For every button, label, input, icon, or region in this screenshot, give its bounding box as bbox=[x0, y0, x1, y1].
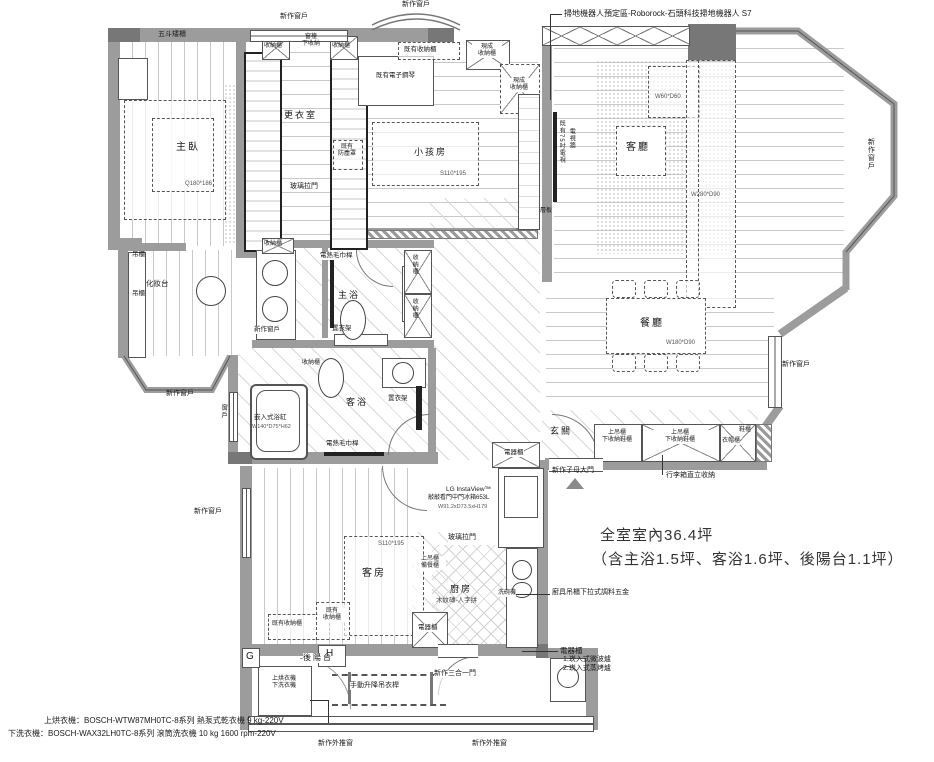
shelf-label: 層板 bbox=[540, 208, 552, 215]
sill-storage-label: 窗檯 下收納 bbox=[292, 34, 330, 48]
room-label-guest-bath: 客浴 bbox=[346, 397, 368, 408]
sofa bbox=[686, 60, 736, 308]
appliance-callout-leader bbox=[522, 651, 558, 652]
column bbox=[108, 28, 140, 42]
robot-leader bbox=[550, 14, 551, 100]
sink bbox=[392, 362, 414, 384]
closet-wardrobe-left bbox=[244, 52, 282, 252]
dining-chair bbox=[644, 280, 668, 298]
balcony-window-band bbox=[248, 716, 594, 732]
grid-letter-h: H bbox=[326, 648, 333, 660]
heated-towel-bar bbox=[324, 452, 384, 456]
dining-chair bbox=[612, 280, 636, 298]
piano bbox=[358, 56, 434, 106]
washer-spec-note: 下洗衣機：BOSCH-WAX32LH0TC-8系列 滾筒洗衣機 10 kg 16… bbox=[8, 729, 276, 739]
prep-cabinet-line: 備餐櫃 bbox=[421, 563, 439, 569]
wall-segment bbox=[428, 348, 436, 456]
window-label: 窗戶 bbox=[219, 404, 227, 419]
kitchen-balcony-door-gap bbox=[438, 644, 478, 658]
area-summary-line2: （含主浴1.5坪、客浴1.6坪、後陽台1.1坪） bbox=[592, 548, 904, 569]
ready-line1: 現成 bbox=[481, 44, 493, 50]
push-out-window-label: 新作外推窗 bbox=[472, 740, 507, 748]
column bbox=[688, 24, 736, 62]
storage-cabinet-label: 收納櫃 bbox=[302, 360, 320, 367]
double-door-label: 新作子母大門 bbox=[552, 467, 594, 475]
master-bed-size: Q180*186 bbox=[185, 181, 212, 188]
sink bbox=[262, 260, 288, 286]
fridge-inner bbox=[504, 476, 538, 518]
upper-cabinet-line: 上吊櫃 bbox=[421, 556, 439, 562]
robot-vacuum-note: 掃地機器人預定區-Roborock-石頭科技掃地機器人 S7 bbox=[564, 9, 752, 19]
guest-bed-size: S110*195 bbox=[378, 541, 404, 548]
ready-line2: 收納櫃 bbox=[510, 85, 528, 91]
new-window-label: 新作窗戶 bbox=[166, 390, 194, 398]
floor-plan: 主臥 Q180*186 更衣室 小孩房 S110*195 客廳 W60*D60 … bbox=[0, 0, 934, 762]
storage-cabinet-label: 收納櫃 bbox=[410, 298, 417, 319]
dishwasher-label: 洗碗機 bbox=[498, 590, 516, 597]
existing-storage-label: 既有收納櫃 bbox=[404, 46, 437, 54]
kitchen-floor-label: 木紋磚-人字拼 bbox=[436, 597, 477, 605]
living-window-band bbox=[542, 26, 690, 46]
window bbox=[242, 488, 251, 558]
coffee-table-size: W60*D60 bbox=[655, 94, 681, 101]
window bbox=[768, 336, 782, 408]
shoe-storage-line: 下收納鞋櫃 bbox=[665, 437, 695, 443]
coat-cabinet-label: 衣帽櫃 bbox=[722, 438, 740, 445]
room-label-kids: 小孩房 bbox=[414, 147, 447, 158]
luggage-leader bbox=[662, 455, 663, 475]
appliance-cabinet-label: 電器櫃 bbox=[418, 624, 438, 632]
ready-line2: 收納櫃 bbox=[478, 51, 496, 57]
room-label-master: 主臥 bbox=[176, 142, 200, 154]
dining-chair bbox=[644, 354, 668, 372]
heated-towel-bar bbox=[330, 258, 334, 328]
sill-line2: 下收納 bbox=[302, 41, 320, 47]
fridge-label-1: LG InstaView™ bbox=[446, 486, 491, 494]
room-label-closet: 更衣室 bbox=[284, 110, 317, 121]
appliance-callout-item2: 2.崁入式蒸烤爐 bbox=[563, 665, 611, 673]
bosch-leader bbox=[310, 700, 329, 701]
dining-table-size: W180*D90 bbox=[666, 340, 695, 347]
clothes-rack-bar bbox=[416, 386, 422, 430]
new-window-label: 新作窗戶 bbox=[402, 1, 430, 9]
sofa-cushion-line bbox=[698, 60, 699, 306]
dust-cover-label: 既有 防塵罩 bbox=[334, 144, 360, 158]
existing-line: 既有 bbox=[326, 608, 338, 614]
kids-bookshelf bbox=[518, 94, 540, 230]
wall-segment bbox=[118, 250, 128, 358]
vanity-bay-glass bbox=[124, 356, 230, 390]
clothes-rack-label: 置衣架 bbox=[332, 325, 352, 333]
wall-segment bbox=[240, 644, 548, 656]
appliance-callout-item1: 1.崁入式微波爐 bbox=[563, 656, 611, 664]
existing-tv-label: 既有75吋電視 bbox=[557, 120, 564, 164]
upper-cabinet-line: 上吊櫃 bbox=[671, 430, 689, 436]
washer-dryer-label: 上烘衣機 下洗衣機 bbox=[262, 676, 306, 690]
dryer-line: 上烘衣機 bbox=[272, 676, 296, 682]
shoe-cabinet-box bbox=[756, 424, 772, 462]
storage-cabinet-label: 收納櫃 bbox=[264, 43, 282, 50]
vanity-stool bbox=[196, 276, 226, 306]
new-window-label: 新作窗戶 bbox=[254, 326, 280, 334]
sofa-size: W280*D90 bbox=[691, 192, 720, 199]
hall-storage-cabinet bbox=[404, 250, 432, 294]
room-label-entry: 玄關 bbox=[550, 426, 572, 437]
kids-bed-size: S110*195 bbox=[440, 171, 466, 178]
existing-storage-label: 既有收納櫃 bbox=[272, 621, 302, 628]
storage-cabinet-label: 收納櫃 bbox=[332, 43, 350, 50]
five-drawer-label: 五斗矮櫃 bbox=[158, 31, 186, 39]
existing-storage-label-2: 既有 收納櫃 bbox=[318, 608, 346, 622]
fridge-label-2: 敲敲看門中門冰箱653L bbox=[428, 495, 489, 502]
new-window-label: 新作窗戶 bbox=[866, 138, 874, 170]
dining-chair bbox=[676, 354, 700, 372]
glass-door-label: 玻璃拉門 bbox=[448, 534, 476, 542]
dust-cover-line: 防塵罩 bbox=[338, 151, 356, 157]
fridge-label-3: W91.2xD73.5xH179 bbox=[438, 504, 487, 511]
upper-prep-cabinet-label: 上吊櫃 備餐櫃 bbox=[414, 556, 446, 570]
glass-door-label: 玻璃拉門 bbox=[290, 183, 318, 191]
kitchen-sink bbox=[512, 560, 532, 580]
window bbox=[229, 392, 238, 442]
appliance-cabinet-label: 電器櫃 bbox=[504, 449, 524, 457]
column bbox=[428, 28, 454, 42]
lift-rod-post bbox=[430, 672, 433, 704]
lift-rod-label: 手動升降吊衣桿 bbox=[350, 682, 399, 690]
towel-bar-label: 電熱毛巾桿 bbox=[320, 252, 353, 260]
vanity-bay-wall bbox=[124, 356, 230, 390]
new-window-label: 新作窗戶 bbox=[782, 361, 810, 369]
ready-line1: 現成 bbox=[513, 78, 525, 84]
dining-chair bbox=[676, 280, 700, 298]
new-window-label: 新作窗戶 bbox=[194, 508, 222, 516]
shoe-storage-line: 下收納鞋櫃 bbox=[602, 437, 632, 443]
dining-chair bbox=[612, 354, 636, 372]
push-out-window-label: 新作外推窗 bbox=[318, 740, 353, 748]
toilet bbox=[340, 300, 366, 340]
entry-arrow-icon bbox=[566, 478, 584, 489]
room-label-vanity: 化妝台 bbox=[146, 279, 169, 288]
upper-cabinet-line: 上吊櫃 bbox=[608, 430, 626, 436]
bath-bench bbox=[334, 334, 388, 346]
vanity-counter-left bbox=[128, 252, 146, 358]
wall-segment bbox=[322, 248, 328, 338]
ready-cabinet-label: 現成 收納櫃 bbox=[504, 78, 534, 92]
sink bbox=[262, 296, 288, 322]
towel-bar-label: 電熱毛巾桿 bbox=[326, 440, 359, 448]
shoe-cabinet-label: 鞋櫃 bbox=[739, 427, 751, 434]
room-label-living: 客廳 bbox=[626, 142, 650, 154]
hall-storage-cabinet bbox=[404, 294, 432, 338]
storage-cabinet-label: 收納櫃 bbox=[410, 254, 417, 275]
tub-name-label: 嵌入式浴缸 bbox=[254, 414, 287, 422]
entry-cabinet-label: 上吊櫃 下收納鞋櫃 bbox=[596, 430, 638, 444]
wall-segment bbox=[118, 243, 186, 251]
appliance-callout-title: 電器櫃 bbox=[560, 646, 583, 655]
piano-label: 既有電子鋼琴 bbox=[376, 72, 415, 80]
room-label-guest: 客房 bbox=[362, 568, 386, 580]
grid-letter-g: G bbox=[246, 651, 254, 663]
storage-line: 收納櫃 bbox=[323, 615, 341, 621]
room-label-master-bath: 主浴 bbox=[338, 290, 360, 301]
dryer-spec-note: 上烘衣機：BOSCH-WTW87MH0TC-8系列 熱泵式乾衣機 9 kg-22… bbox=[44, 716, 284, 726]
robot-leader bbox=[550, 14, 562, 15]
existing-line: 既有 bbox=[341, 144, 353, 150]
kids-room-sill bbox=[362, 230, 538, 239]
master-side-table bbox=[118, 58, 148, 100]
kitchen-hardware-label: 廚具吊櫃下拉式調料五金 bbox=[552, 589, 629, 597]
area-summary-line1: 全室室內36.4坪 bbox=[600, 524, 713, 545]
toilet bbox=[318, 358, 344, 398]
room-label-kitchen: 廚房 bbox=[450, 584, 472, 595]
ready-cabinet-label: 現成 收納櫃 bbox=[472, 44, 502, 58]
three-in-one-door-label: 新作三合一門 bbox=[434, 670, 476, 678]
room-label-dining: 餐廳 bbox=[640, 318, 664, 330]
hanging-cabinet-label: 吊櫃 bbox=[132, 251, 145, 259]
new-window-label: 新作窗戶 bbox=[280, 13, 308, 21]
washer-line: 下洗衣機 bbox=[272, 683, 296, 689]
clothes-rack-label: 置衣架 bbox=[388, 395, 408, 403]
hanging-cabinet-label: 吊櫃 bbox=[132, 290, 145, 298]
entry-cabinet-label: 上吊櫃 下收納鞋櫃 bbox=[650, 430, 710, 444]
luggage-label: 行李箱直立收納 bbox=[666, 472, 715, 480]
sill-line1: 窗檯 bbox=[305, 34, 317, 40]
tv-wall-label: 電視牆 bbox=[567, 128, 574, 149]
bosch-leader bbox=[328, 700, 329, 723]
storage-cabinet-label: 收納櫃 bbox=[264, 241, 282, 248]
tub-size-label: W140*D75*H62 bbox=[252, 424, 291, 431]
kids-curved-window-outer bbox=[372, 14, 460, 25]
column bbox=[228, 452, 252, 464]
